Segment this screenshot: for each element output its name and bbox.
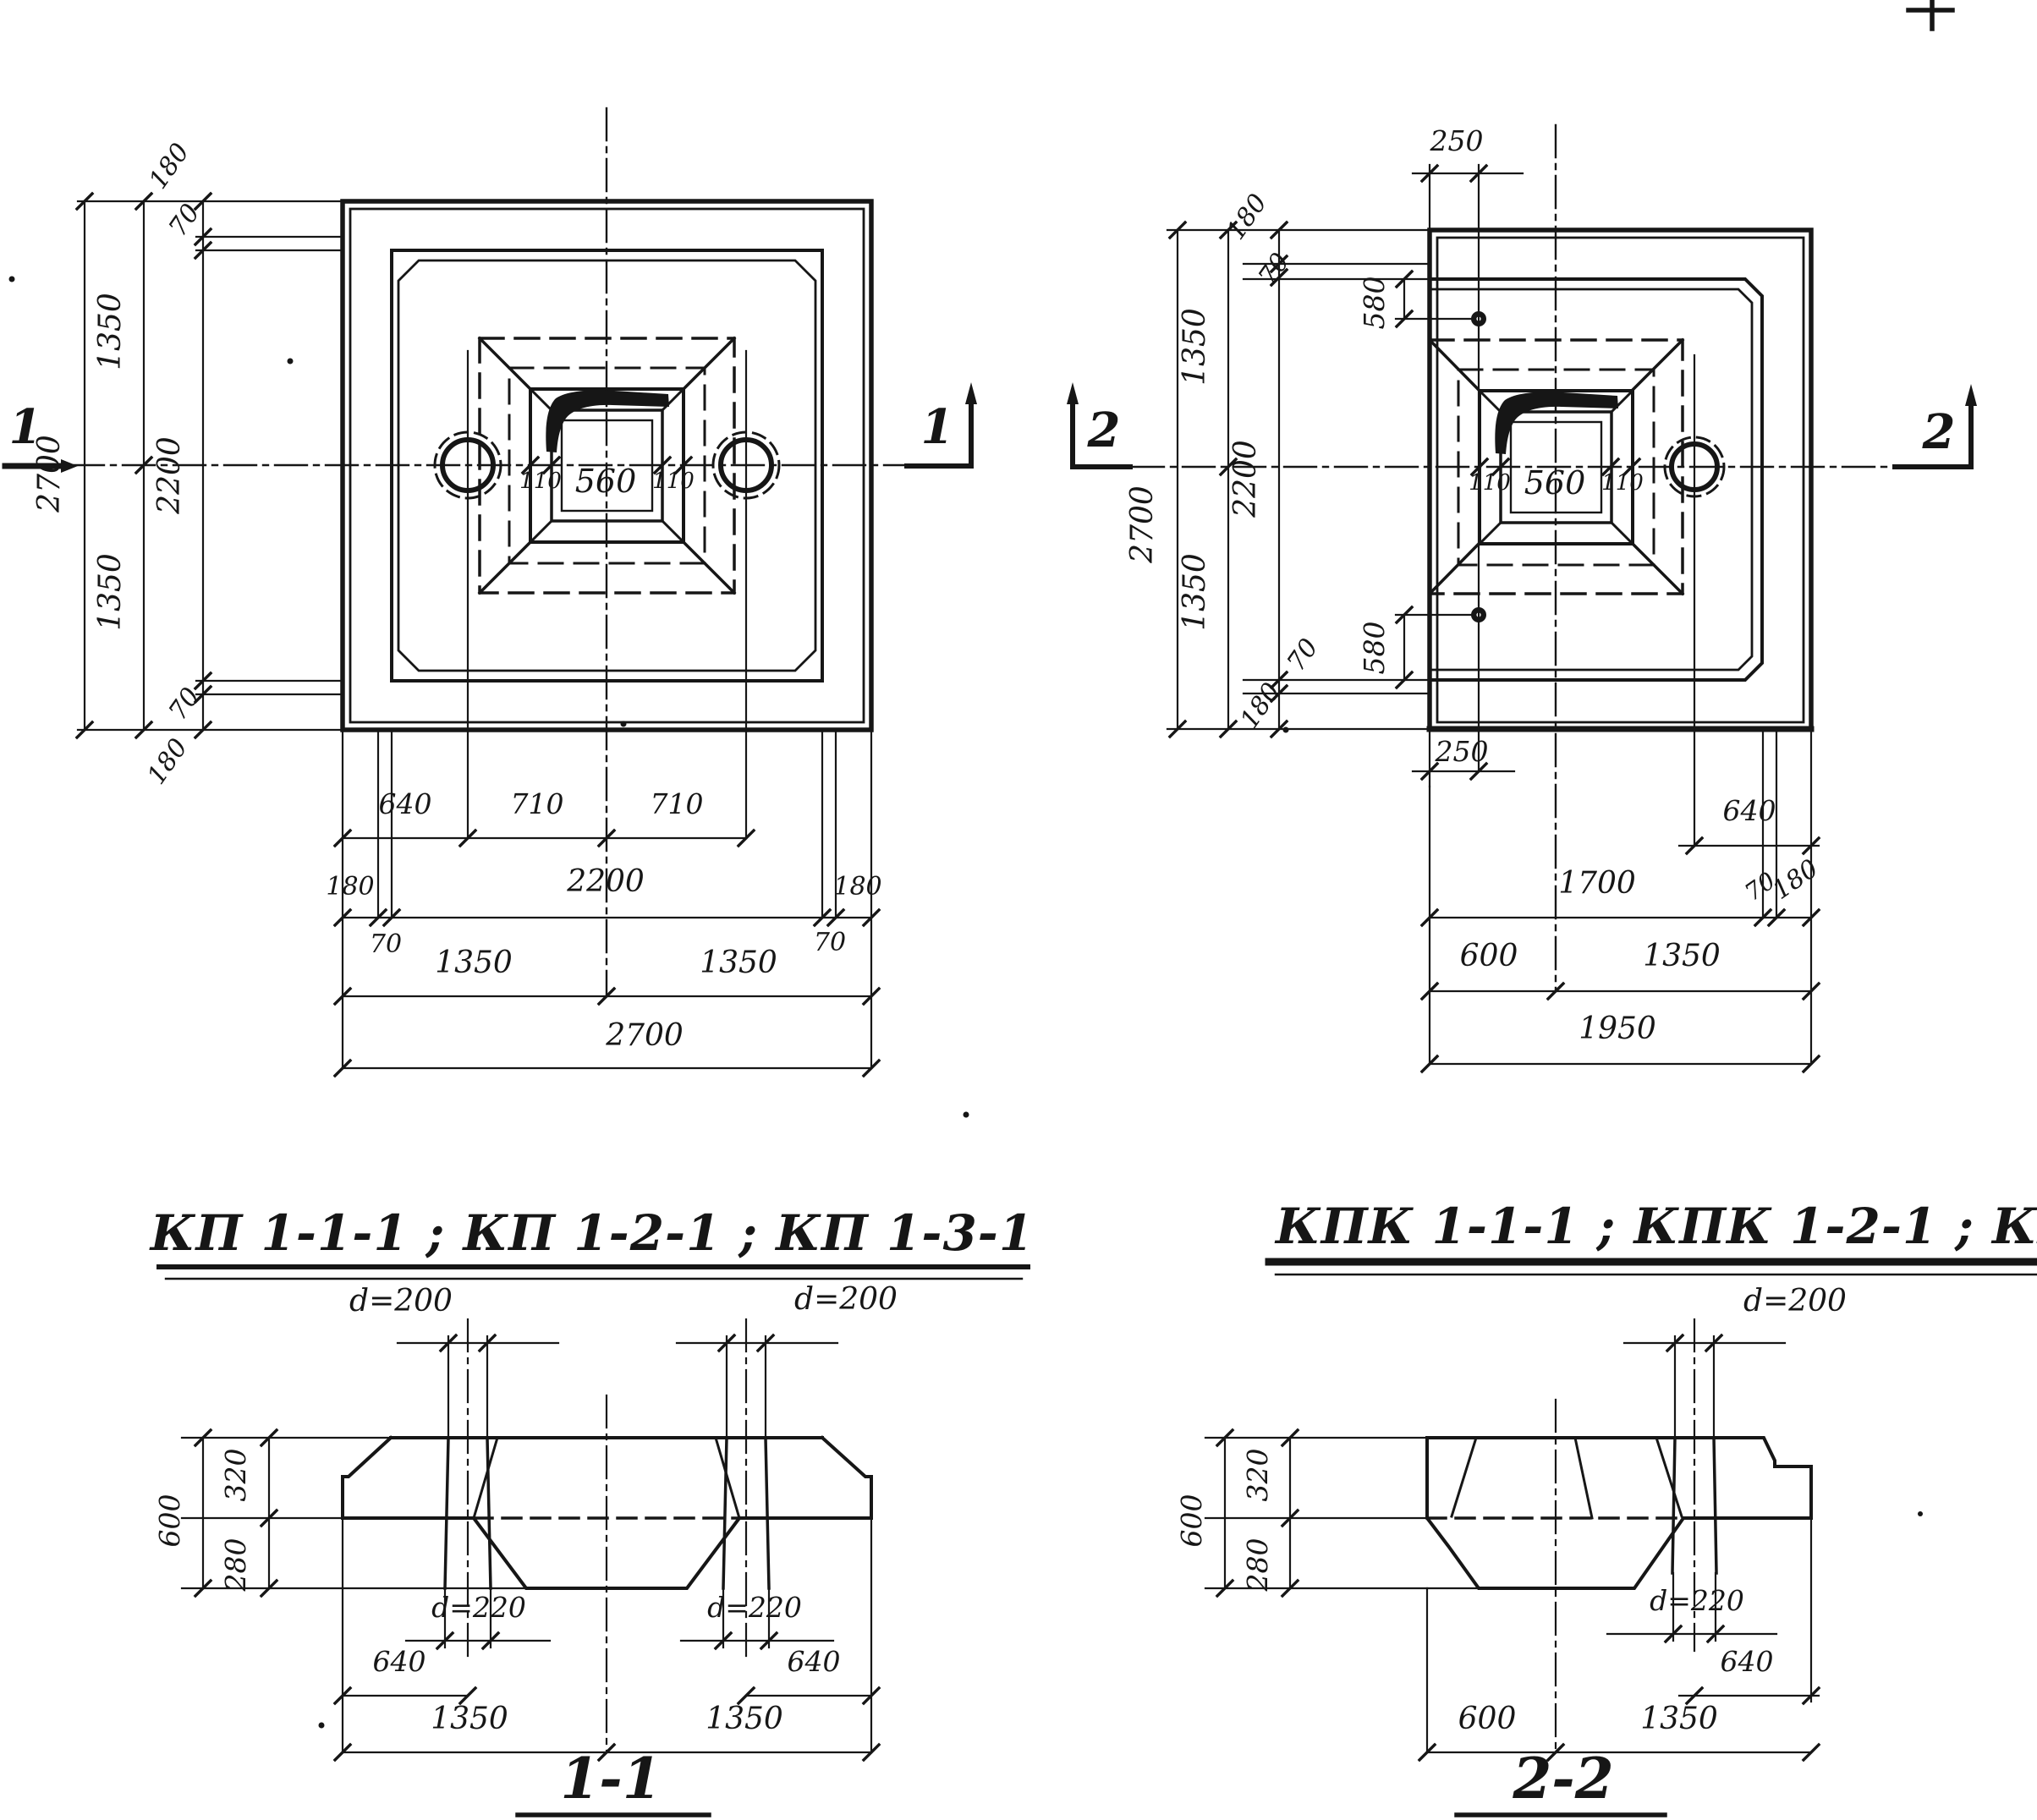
scan-artifacts [9, 2, 1953, 1729]
dim-1700: 1700 [1558, 866, 1636, 901]
dim-70r: 70 [814, 928, 846, 957]
dim-180l: 180 [326, 872, 374, 902]
dia-200-left: d=200 [349, 1284, 453, 1318]
dim-2200-left: 2200 [152, 436, 187, 515]
dim-180-bot: 180 [141, 733, 194, 790]
dim-580-top: 580 [1358, 277, 1391, 330]
section-2-2-body [1427, 1438, 1811, 1588]
dim-710a: 710 [511, 787, 564, 820]
dim-1350: 1350 [1640, 1702, 1718, 1736]
dim-70-bot: 70 [163, 682, 206, 726]
dim-580-bot: 580 [1358, 622, 1391, 675]
dim-1350-left: 1350 [431, 1702, 508, 1736]
title-kpk: КПК 1-1-1 ; КПК 1-2-1 ; КПК 1-3-1 [1274, 1198, 2037, 1255]
dim-2700-left: 2700 [32, 435, 67, 513]
dia-220: d=220 [1650, 1584, 1744, 1617]
dim-socket-110r: 110 [1601, 470, 1644, 496]
dia-200: d=200 [1743, 1284, 1847, 1318]
section-1-1: d=200 d=200 d=220 d=220 600 320 280 640 … [153, 1282, 898, 1815]
dim-1350r: 1350 [700, 946, 777, 980]
section-label-1-1: 1-1 [560, 1746, 661, 1812]
dim-1950: 1950 [1579, 1011, 1656, 1046]
dim-socket-560: 560 [1524, 464, 1586, 502]
dim-640: 640 [1721, 1645, 1774, 1678]
dim-socket-110l: 110 [1469, 470, 1511, 496]
dim-180r: 180 [833, 872, 881, 902]
dim-1350: 1350 [1643, 939, 1721, 973]
dim-280: 280 [1241, 1538, 1274, 1592]
dim-1350-right: 1350 [706, 1702, 783, 1736]
section-mark-2-right: 2 [1922, 404, 1956, 460]
dim-600: 600 [1458, 1702, 1517, 1736]
plan-left-dimensions [77, 194, 879, 1076]
dim-70-bot: 70 [1282, 633, 1325, 677]
dim-710b: 710 [651, 787, 704, 820]
dia-200-right: d=200 [794, 1282, 898, 1317]
dim-1350l: 1350 [435, 946, 513, 980]
cut-arrow-right [1965, 384, 1977, 406]
plan-right-centerlines [1132, 125, 1893, 991]
blueprint-sheet: 1 1 110 560 110 640 710 710 180 2200 180… [0, 0, 2037, 1820]
dim-1350-bot: 1350 [93, 553, 128, 631]
plan-right: 2 2 250 250 110 560 110 2700 1350 1350 2… [1067, 124, 1977, 1072]
dim-2700-left: 2700 [1125, 485, 1160, 564]
dim-180-top: 180 [143, 138, 195, 195]
section-mark-1-right: 1 [921, 399, 954, 455]
dim-640: 640 [1723, 794, 1776, 827]
dim-70-top: 70 [1253, 248, 1296, 291]
dim-640-right: 640 [788, 1645, 841, 1678]
dia-220-right: d=220 [707, 1591, 802, 1624]
dim-2200-bottom: 2200 [566, 864, 645, 899]
plan-left: 1 1 110 560 110 640 710 710 180 2200 180… [5, 108, 977, 1076]
dim-70l: 70 [370, 929, 402, 959]
dim-600: 600 [1460, 939, 1518, 973]
dim-1350-top: 1350 [1178, 308, 1212, 386]
plan-right-dimensions [1167, 165, 1819, 1072]
dim-280: 280 [219, 1538, 252, 1592]
dim-1350-top: 1350 [93, 293, 128, 370]
titles: КП 1-1-1 ; КП 1-2-1 ; КП 1-3-1 КПК 1-1-1… [149, 1198, 2037, 1279]
dim-640-left: 640 [373, 1645, 426, 1678]
dim-socket-560: 560 [575, 463, 637, 500]
dim-2700-bottom: 2700 [605, 1018, 684, 1053]
dim-600: 600 [153, 1494, 186, 1548]
section-mark-2-left: 2 [1087, 403, 1121, 458]
cut-arrow-right [965, 382, 977, 404]
dim-320: 320 [219, 1449, 252, 1502]
dim-640: 640 [379, 787, 432, 820]
dia-220-left: d=220 [431, 1591, 526, 1624]
dim-2200-left: 2200 [1228, 440, 1263, 518]
section-1-1-centerlines [468, 1319, 746, 1752]
section-2-2: d=200 d=220 600 320 280 640 600 1350 2-2 [1175, 1284, 1847, 1815]
title-kp: КП 1-1-1 ; КП 1-2-1 ; КП 1-3-1 [149, 1204, 1035, 1262]
dim-socket-110l: 110 [519, 469, 562, 494]
dim-250-bottom: 250 [1435, 735, 1489, 768]
dim-1350-bot: 1350 [1178, 553, 1212, 631]
dim-320: 320 [1241, 1449, 1274, 1502]
section-2-2-dimensions [1205, 1335, 1819, 1760]
dim-600-h: 600 [1175, 1494, 1208, 1548]
dim-socket-110r: 110 [652, 469, 695, 494]
section-label-2-2: 2-2 [1512, 1746, 1613, 1812]
dim-250-top: 250 [1430, 124, 1484, 157]
cut-arrow-left [1067, 382, 1079, 404]
section-1-1-dimensions [182, 1335, 879, 1760]
foundation-drawing: 1 1 110 560 110 640 710 710 180 2200 180… [0, 0, 2037, 1820]
